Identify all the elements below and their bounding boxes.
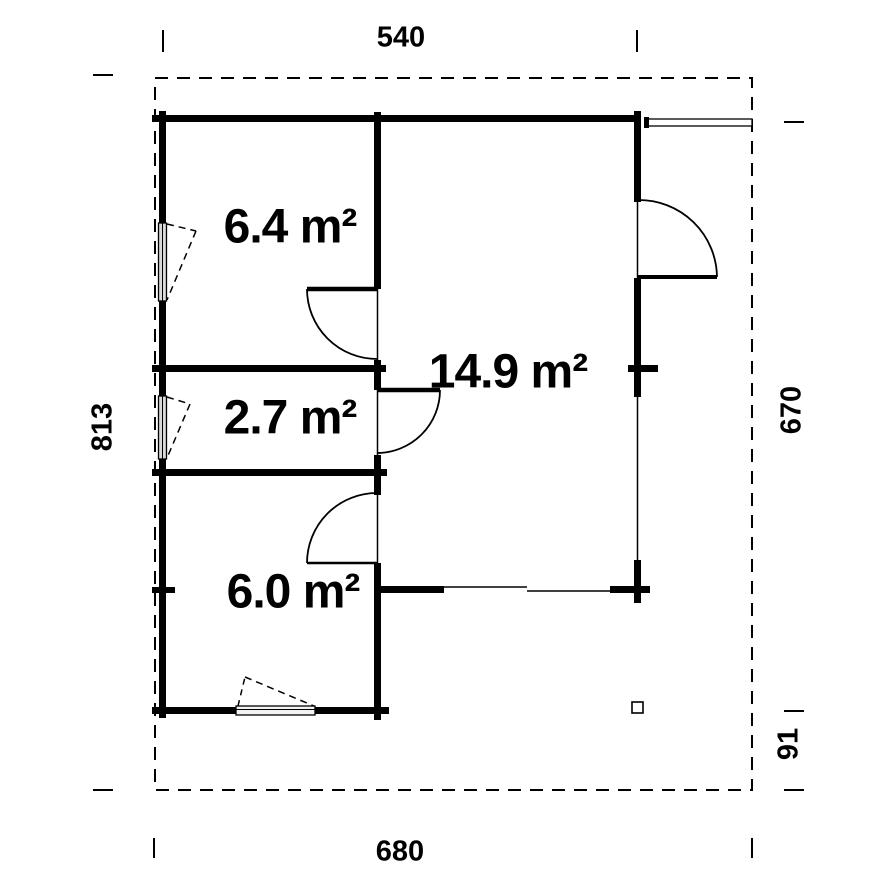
door-arc-hall — [638, 200, 717, 277]
wall-right-corner — [634, 560, 641, 603]
window-swing-room1-a — [167, 224, 196, 231]
window-swing-room2-b — [167, 404, 190, 458]
window-swing-room1-b — [167, 231, 196, 300]
wall-right-middle — [634, 278, 641, 397]
railing-top-right-post — [644, 117, 649, 128]
wall-interior-horizontal-2 — [152, 469, 387, 476]
wall-right-upper — [634, 111, 641, 202]
dimension-label-left-813: 813 — [87, 403, 120, 451]
terrace-post-square — [632, 702, 643, 713]
room-area-label-14-9: 14.9 m² — [429, 345, 587, 400]
window-swing-room3-b — [245, 677, 314, 706]
wall-bottom-left-segment — [152, 707, 236, 714]
wall-joint-tick-right — [628, 365, 658, 372]
wall-interior-vertical-seg2 — [374, 360, 381, 390]
wall-interior-horizontal-1 — [152, 365, 386, 372]
room-area-label-6-4: 6.4 m² — [224, 200, 357, 255]
dimension-label-top-540: 540 — [377, 22, 425, 55]
wall-top — [152, 115, 641, 122]
wall-interior-vertical-seg1 — [374, 112, 381, 289]
railing-top-right — [645, 119, 752, 126]
room-area-label-2-7: 2.7 m² — [224, 391, 357, 446]
door-arc-room3 — [307, 493, 377, 563]
window-swing-room3-a — [238, 677, 245, 706]
wall-hall-bottom-right — [610, 586, 650, 593]
wall-hall-bottom-left — [378, 586, 444, 593]
dimension-label-right-91: 91 — [773, 728, 806, 760]
floor-plan-canvas: 6.4 m² 2.7 m² 6.0 m² 14.9 m² 540 680 813… — [0, 0, 895, 895]
door-arc-room1 — [307, 289, 377, 359]
window-swing-room2-a — [167, 397, 190, 404]
window-bottom-room3 — [236, 706, 315, 715]
floor-plan-drawing — [0, 0, 895, 895]
room-area-label-6-0: 6.0 m² — [227, 565, 360, 620]
wall-joint-tick-left — [152, 587, 175, 593]
dimension-label-right-670: 670 — [776, 386, 809, 434]
dimension-label-bottom-680: 680 — [376, 836, 424, 869]
